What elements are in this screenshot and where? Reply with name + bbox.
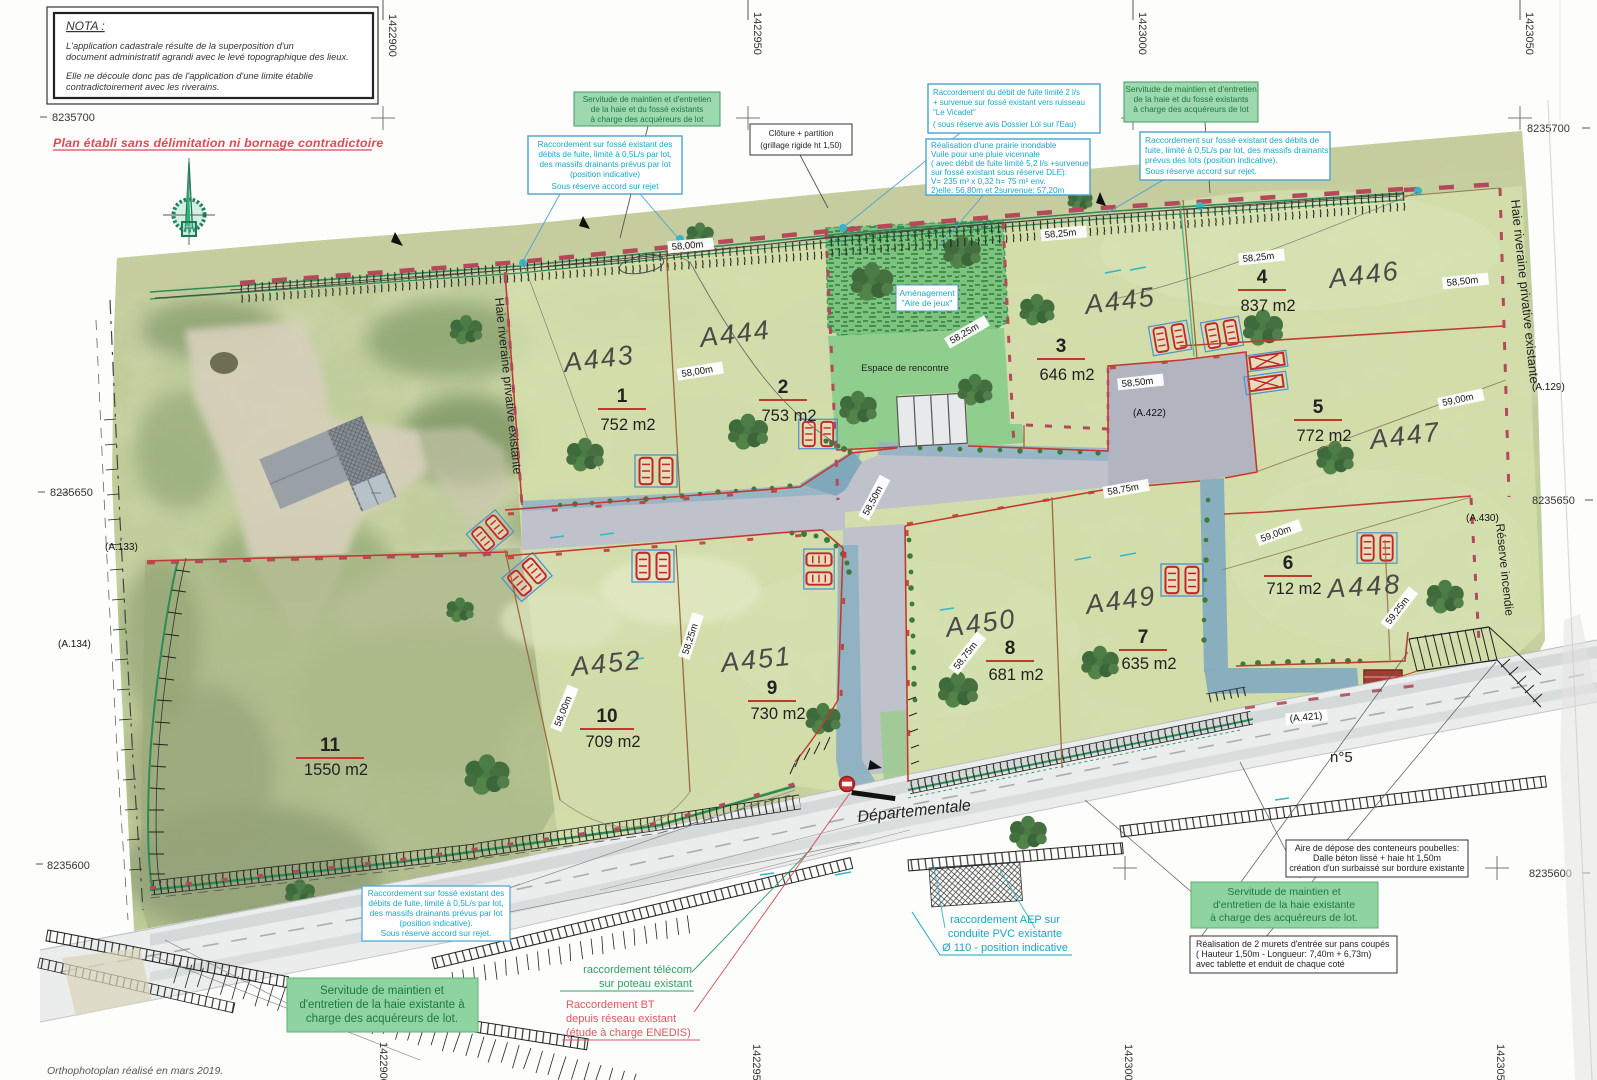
svg-text:raccordement télécom: raccordement télécom bbox=[583, 964, 692, 976]
svg-text:Servitude de maintien et d'ent: Servitude de maintien et d'entretien bbox=[583, 95, 712, 104]
svg-text:635 m2: 635 m2 bbox=[1121, 655, 1176, 673]
svg-text:837 m2: 837 m2 bbox=[1240, 297, 1295, 315]
svg-text:conduite PVC existante: conduite PVC existante bbox=[948, 928, 1062, 940]
svg-text:1423000: 1423000 bbox=[1136, 12, 1148, 55]
svg-text:8235700: 8235700 bbox=[1527, 123, 1570, 135]
svg-text:(A.422): (A.422) bbox=[1133, 408, 1166, 419]
svg-text:Orthophotoplan réalisé en mars: Orthophotoplan réalisé en mars 2019. bbox=[47, 1065, 223, 1077]
svg-text:Servitude de maintien et d'ent: Servitude de maintien et d'entretien bbox=[1125, 84, 1257, 94]
svg-text:débits de fuite, limité à 0,5L: débits de fuite, limité à 0,5L/s par lot… bbox=[538, 150, 671, 159]
svg-text:709 m2: 709 m2 bbox=[585, 733, 640, 751]
svg-text:A448: A448 bbox=[1324, 569, 1403, 604]
svg-text:d'entretien de la haie existan: d'entretien de la haie existante bbox=[1213, 899, 1355, 911]
svg-text:Ø 110 - position indicative: Ø 110 - position indicative bbox=[942, 942, 1068, 954]
svg-text:8235650: 8235650 bbox=[1532, 495, 1575, 507]
svg-text:(étude à charge ENEDIS): (étude à charge ENEDIS) bbox=[566, 1027, 691, 1039]
svg-text:1422900: 1422900 bbox=[377, 1042, 389, 1080]
svg-text:des massifs drainants prévus p: des massifs drainants prévus par lot bbox=[539, 160, 671, 169]
svg-text:document administratif agrandi: document administratif agrandi avec le l… bbox=[66, 52, 349, 62]
svg-text:Sous réserve accord sur rejet.: Sous réserve accord sur rejet. bbox=[1145, 166, 1257, 176]
svg-text:(position indicative).: (position indicative). bbox=[399, 918, 472, 928]
svg-text:Servitude de maintien et: Servitude de maintien et bbox=[1227, 886, 1340, 898]
svg-text:de la haie et du fossé existan: de la haie et du fossé existants bbox=[1134, 94, 1249, 104]
svg-text:Aménagement: Aménagement bbox=[899, 288, 955, 298]
svg-text:1422900: 1422900 bbox=[386, 14, 398, 57]
svg-text:depuis réseau existant: depuis réseau existant bbox=[566, 1013, 676, 1025]
svg-text:à charge des acquéreurs de lot: à charge des acquéreurs de lot bbox=[591, 115, 705, 124]
svg-text:10: 10 bbox=[596, 706, 617, 727]
svg-text:( Hauteur 1,50m - Longueur: 7,: ( Hauteur 1,50m - Longueur: 7,40m + 6,73… bbox=[1196, 949, 1371, 959]
svg-text:débits de fuite, limité à 0,5L: débits de fuite, limité à 0,5L/s par lot… bbox=[368, 898, 503, 908]
svg-text:(A.430): (A.430) bbox=[1466, 513, 1499, 524]
svg-text:4: 4 bbox=[1257, 267, 1268, 288]
svg-text:des massifs drainants prévus p: des massifs drainants prévus par lot bbox=[370, 908, 504, 918]
svg-text:772 m2: 772 m2 bbox=[1296, 427, 1351, 445]
svg-text:(A.129): (A.129) bbox=[1532, 382, 1565, 393]
svg-text:d'entretien de la haie existan: d'entretien de la haie existante à bbox=[299, 999, 465, 1011]
svg-text:752 m2: 752 m2 bbox=[600, 416, 655, 434]
svg-text:sur poteau existant: sur poteau existant bbox=[599, 978, 692, 990]
svg-text:de la haie et du fossé existan: de la haie et du fossé existants bbox=[591, 105, 703, 114]
svg-text:Raccordement sur fossé existan: Raccordement sur fossé existant des bbox=[368, 888, 505, 898]
svg-text:Raccordement sur fossé existan: Raccordement sur fossé existant des bbox=[538, 140, 673, 149]
svg-text:"Aire de jeux": "Aire de jeux" bbox=[902, 298, 953, 308]
svg-text:Réalisation d'une prairie inon: Réalisation d'une prairie inondable bbox=[931, 141, 1057, 150]
svg-text:1422950: 1422950 bbox=[751, 12, 763, 55]
svg-text:8235700: 8235700 bbox=[52, 112, 95, 124]
svg-text:Elle ne découle donc pas de l': Elle ne découle donc pas de l'applicatio… bbox=[66, 71, 313, 81]
svg-text:( sous réserve avis Dossier Lo: ( sous réserve avis Dossier Loi sur l'Ea… bbox=[933, 120, 1077, 129]
svg-text:+ survenue sur fossé existant: + survenue sur fossé existant vers ruiss… bbox=[933, 98, 1085, 107]
svg-text:(grillage rigide ht 1,50): (grillage rigide ht 1,50) bbox=[760, 141, 842, 150]
svg-text:Dalle béton lissé + haie ht 1,: Dalle béton lissé + haie ht 1,50m bbox=[1313, 853, 1441, 863]
svg-text:8235600: 8235600 bbox=[47, 860, 90, 872]
svg-text:à charge des acquéreurs de lot: à charge des acquéreurs de lot bbox=[1133, 104, 1249, 114]
svg-text:2: 2 bbox=[778, 377, 789, 398]
svg-text:753 m2: 753 m2 bbox=[761, 407, 816, 425]
svg-text:Raccordement BT: Raccordement BT bbox=[566, 999, 655, 1011]
svg-text:Servitude de maintien et: Servitude de maintien et bbox=[320, 985, 445, 997]
svg-text:Sous réserve accord sur rejet.: Sous réserve accord sur rejet. bbox=[381, 928, 492, 938]
svg-text:6: 6 bbox=[1283, 553, 1294, 574]
svg-text:1422950: 1422950 bbox=[750, 1044, 762, 1080]
svg-text:646 m2: 646 m2 bbox=[1039, 366, 1094, 384]
svg-text:(position indicative): (position indicative) bbox=[570, 170, 640, 179]
svg-text:712 m2: 712 m2 bbox=[1266, 580, 1321, 598]
svg-text:1: 1 bbox=[617, 386, 628, 407]
svg-text:raccordement AEP sur: raccordement AEP sur bbox=[950, 914, 1060, 926]
svg-text:prévus des lots (position indi: prévus des lots (position indicative). bbox=[1145, 155, 1278, 165]
svg-text:création d'un surbaissé sur bo: création d'un surbaissé sur bordure exis… bbox=[1289, 863, 1464, 873]
svg-text:2)elle: 56,80m et 2survenue: 5: 2)elle: 56,80m et 2survenue: 57,20m bbox=[931, 186, 1065, 195]
svg-text:Espace de rencontre: Espace de rencontre bbox=[861, 363, 949, 374]
svg-text:(A.133): (A.133) bbox=[105, 542, 138, 553]
svg-text:1423000: 1423000 bbox=[1122, 1044, 1134, 1080]
svg-text:avec tablette et enduit de cha: avec tablette et enduit de chaque coté bbox=[1196, 959, 1345, 969]
svg-text:Réalisation de 2 murets d'entr: Réalisation de 2 murets d'entrée sur pan… bbox=[1196, 939, 1390, 949]
svg-text:Clôture + partition: Clôture + partition bbox=[769, 129, 834, 138]
svg-text:n°5: n°5 bbox=[1330, 749, 1353, 766]
svg-text:1550 m2: 1550 m2 bbox=[304, 761, 368, 779]
svg-text:sur fossé existant sous réserv: sur fossé existant sous réserve DLE): bbox=[931, 168, 1067, 177]
svg-text:1423050: 1423050 bbox=[1494, 1044, 1506, 1080]
svg-text:9: 9 bbox=[767, 678, 778, 699]
svg-text:(A.134): (A.134) bbox=[58, 639, 91, 650]
svg-text:Raccordement du débit de fuite: Raccordement du débit de fuite limité 2 … bbox=[933, 88, 1080, 97]
svg-text:contradictoirement avec les ri: contradictoirement avec les riverains. bbox=[66, 82, 219, 92]
svg-text:Raccordement sur fossé existan: Raccordement sur fossé existant des débi… bbox=[1145, 135, 1319, 145]
svg-text:"Le Vicadet": "Le Vicadet" bbox=[933, 108, 976, 117]
svg-text:( avec débit de fuite limité 5: ( avec débit de fuite limité 5,2 l/s +su… bbox=[931, 159, 1089, 168]
svg-text:8235650: 8235650 bbox=[50, 487, 93, 499]
svg-text:Aire de dépose des conteneurs: Aire de dépose des conteneurs poubelles: bbox=[1295, 843, 1459, 853]
svg-text:fuite, limité à 0,5L/s par lot: fuite, limité à 0,5L/s par lot, des mass… bbox=[1145, 145, 1328, 155]
svg-text:NOTA :: NOTA : bbox=[66, 19, 105, 33]
svg-text:681 m2: 681 m2 bbox=[988, 666, 1043, 684]
svg-text:V= 235 m³ x 0,32 h= 75 m² env.: V= 235 m³ x 0,32 h= 75 m² env. bbox=[931, 177, 1046, 186]
svg-text:5: 5 bbox=[1313, 397, 1324, 418]
svg-text:Vuile pour une pluie vicennale: Vuile pour une pluie vicennale bbox=[931, 150, 1040, 159]
svg-text:8: 8 bbox=[1005, 638, 1016, 659]
svg-text:3: 3 bbox=[1056, 336, 1067, 357]
svg-text:à charge des acquéreurs de lot: à charge des acquéreurs de lot. bbox=[1210, 912, 1358, 924]
svg-text:Plan établi sans délimitation: Plan établi sans délimitation ni bornage… bbox=[53, 136, 383, 150]
svg-text:11: 11 bbox=[320, 735, 341, 756]
svg-text:charge des acquéreurs de lot.: charge des acquéreurs de lot. bbox=[306, 1013, 458, 1025]
svg-text:7: 7 bbox=[1138, 627, 1149, 648]
svg-text:L'application cadastrale résul: L'application cadastrale résulte de la s… bbox=[66, 41, 294, 51]
svg-text:1423050: 1423050 bbox=[1523, 12, 1535, 55]
svg-text:730 m2: 730 m2 bbox=[750, 705, 805, 723]
svg-text:Sous réserve accord sur rejet: Sous réserve accord sur rejet bbox=[552, 182, 660, 191]
